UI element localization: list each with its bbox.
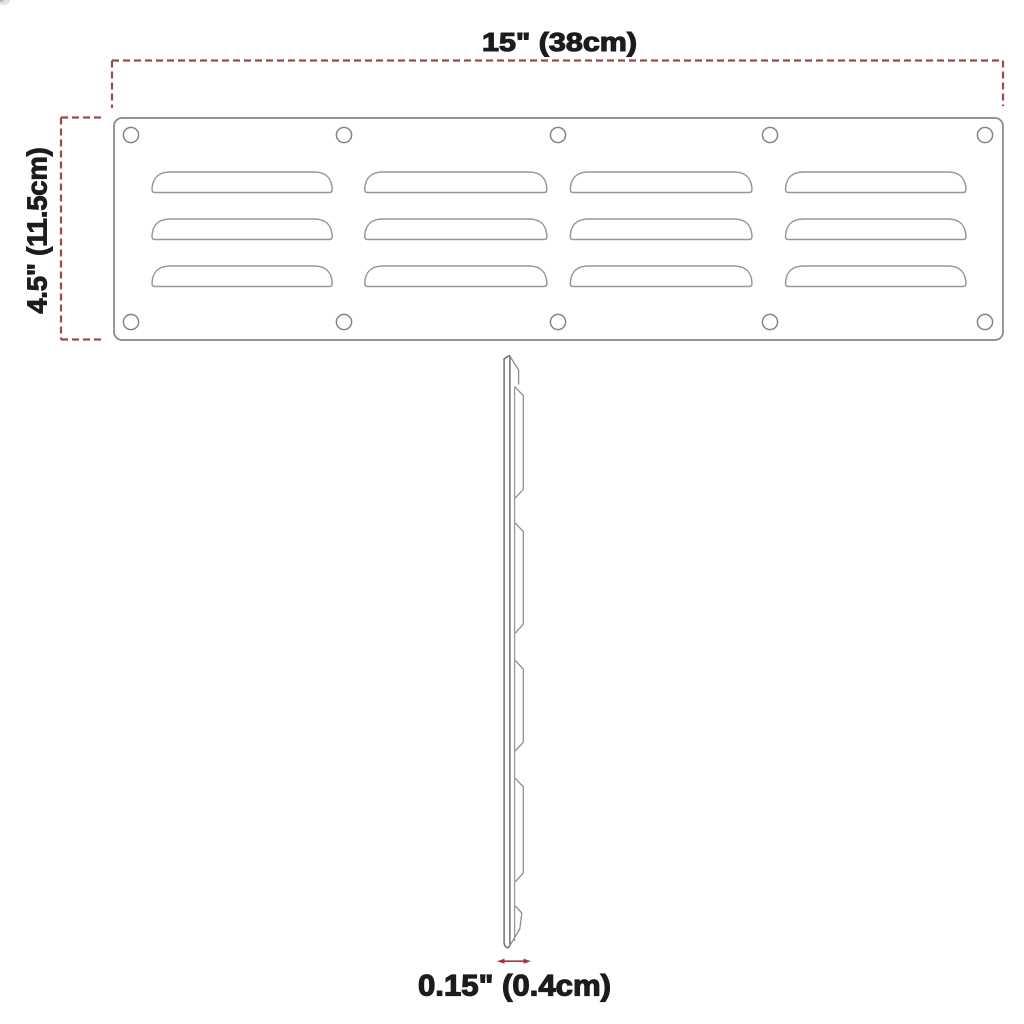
svg-text:0.15" (0.4cm): 0.15" (0.4cm) [418, 970, 611, 1003]
svg-text:4.5" (11.5cm): 4.5" (11.5cm) [22, 147, 53, 313]
svg-text:15" (38cm): 15" (38cm) [482, 29, 637, 57]
